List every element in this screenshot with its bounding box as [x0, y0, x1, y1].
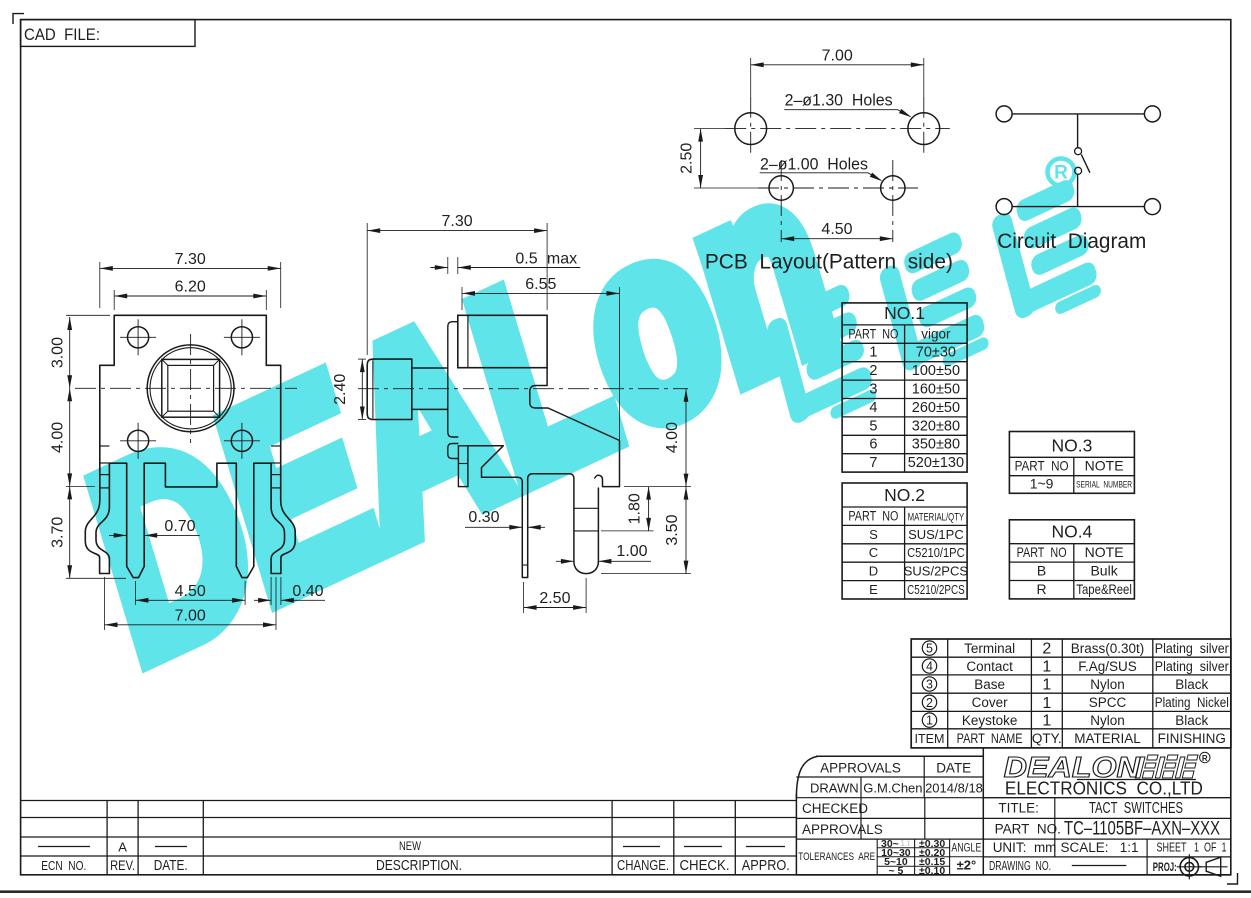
svg-text:2.40: 2.40 — [332, 374, 349, 405]
svg-text:Contact: Contact — [966, 659, 1013, 674]
svg-text:0.30: 0.30 — [468, 509, 499, 526]
svg-text:TITLE:: TITLE: — [998, 801, 1039, 816]
svg-text:ELECTRONICS CO.,LTD: ELECTRONICS CO.,LTD — [1005, 779, 1203, 799]
svg-text:R: R — [1037, 581, 1047, 597]
svg-text:SCALE: 1:1: SCALE: 1:1 — [1061, 840, 1139, 855]
svg-text:DATE.: DATE. — [154, 858, 188, 874]
svg-text:3.50: 3.50 — [664, 514, 681, 545]
svg-text:PART NO: PART NO — [848, 326, 898, 341]
svg-text:DESCRIPTION.: DESCRIPTION. — [376, 858, 462, 874]
svg-text:CHANGE.: CHANGE. — [617, 858, 669, 874]
svg-text:PART NAME: PART NAME — [957, 731, 1023, 746]
svg-text:260±50: 260±50 — [912, 400, 960, 416]
svg-text:FINISHING: FINISHING — [1158, 731, 1226, 746]
svg-text:3.00: 3.00 — [50, 337, 67, 368]
svg-text:NOTE: NOTE — [1085, 458, 1124, 474]
svg-text:2–ø1.30 Holes: 2–ø1.30 Holes — [785, 91, 893, 110]
svg-text:6.55: 6.55 — [525, 276, 556, 293]
svg-text:520±130: 520±130 — [908, 455, 964, 471]
svg-text:2.50: 2.50 — [539, 590, 570, 607]
svg-text:PROJ:: PROJ: — [1153, 862, 1177, 874]
svg-text:5: 5 — [869, 418, 877, 434]
svg-text:5: 5 — [926, 642, 933, 656]
svg-text:TC–1105BF–AXN–XXX: TC–1105BF–AXN–XXX — [1064, 819, 1220, 840]
svg-text:PART NO.: PART NO. — [995, 822, 1061, 837]
svg-text:PART NO: PART NO — [1015, 458, 1069, 474]
svg-text:Base: Base — [974, 677, 1005, 692]
svg-text:1: 1 — [869, 345, 877, 361]
svg-text:CAD FILE:: CAD FILE: — [24, 26, 100, 44]
svg-text:NO.1: NO.1 — [884, 303, 925, 323]
svg-text:1: 1 — [1042, 659, 1051, 676]
svg-text:R: R — [1202, 754, 1208, 763]
svg-text:3.70: 3.70 — [50, 517, 67, 548]
svg-text:DRAWN: DRAWN — [810, 781, 859, 796]
svg-text:C5210/2PCS: C5210/2PCS — [907, 582, 965, 597]
svg-text:1: 1 — [1042, 695, 1051, 712]
svg-text:1: 1 — [926, 714, 933, 728]
svg-text:4: 4 — [926, 660, 933, 674]
svg-text:E: E — [869, 582, 878, 597]
svg-text:4.50: 4.50 — [175, 583, 206, 600]
svg-text:D: D — [869, 564, 878, 579]
svg-text:4.50: 4.50 — [821, 221, 852, 238]
svg-text:Keystoke: Keystoke — [962, 713, 1018, 728]
svg-text:DRAWING NO.: DRAWING NO. — [989, 859, 1051, 873]
svg-text:2: 2 — [1042, 641, 1051, 658]
svg-text:Black: Black — [1175, 713, 1208, 728]
svg-text:SUS/2PCS: SUS/2PCS — [904, 564, 969, 579]
svg-text:Brass(0.30t): Brass(0.30t) — [1071, 641, 1145, 656]
svg-text:ITEM: ITEM — [915, 732, 945, 746]
svg-text:4.00: 4.00 — [50, 422, 67, 453]
svg-text:Plating Nickel: Plating Nickel — [1155, 695, 1229, 710]
svg-text:CHECK.: CHECK. — [680, 858, 730, 874]
svg-text:B: B — [1037, 563, 1046, 579]
svg-text:DATE: DATE — [936, 760, 971, 775]
svg-text:REV.: REV. — [110, 858, 135, 873]
svg-text:1~9: 1~9 — [1030, 476, 1054, 492]
svg-text:350±80: 350±80 — [912, 437, 960, 453]
svg-text:ECN NO.: ECN NO. — [41, 859, 86, 873]
svg-text:±0.10: ±0.10 — [919, 865, 945, 877]
svg-text:3: 3 — [869, 382, 877, 398]
svg-text:4.00: 4.00 — [664, 422, 681, 453]
svg-text:SERIAL NUMBER: SERIAL NUMBER — [1076, 480, 1132, 491]
svg-text:NO.2: NO.2 — [884, 485, 925, 505]
svg-text:7.30: 7.30 — [175, 251, 206, 268]
svg-text:7: 7 — [869, 455, 877, 471]
svg-text:C5210/1PC: C5210/1PC — [907, 545, 965, 560]
svg-text:0.40: 0.40 — [292, 583, 323, 600]
svg-text:2: 2 — [926, 696, 933, 710]
svg-text:2014/8/18: 2014/8/18 — [925, 781, 983, 796]
svg-text:MATERIAL: MATERIAL — [1074, 731, 1141, 746]
svg-text:Black: Black — [1175, 677, 1208, 692]
svg-text:0.70: 0.70 — [164, 518, 195, 535]
svg-text:SHEET 1 OF 1: SHEET 1 OF 1 — [1157, 841, 1227, 855]
svg-text:QTY.: QTY. — [1032, 731, 1062, 746]
svg-text:160±50: 160±50 — [912, 382, 960, 398]
svg-text:2–ø1.00 Holes: 2–ø1.00 Holes — [760, 155, 868, 174]
svg-text:TOLERANCES ARE: TOLERANCES ARE — [798, 851, 875, 863]
svg-text:6: 6 — [869, 437, 877, 453]
svg-text:2.50: 2.50 — [679, 143, 696, 174]
svg-text:2: 2 — [869, 363, 877, 379]
svg-text:vigor: vigor — [921, 326, 951, 341]
svg-text:±2°: ±2° — [957, 858, 977, 873]
svg-text:Plating silver: Plating silver — [1155, 641, 1229, 656]
svg-text:G.M.Chen: G.M.Chen — [863, 781, 922, 796]
svg-text:Cover: Cover — [972, 695, 1009, 710]
svg-text:70±30: 70±30 — [916, 345, 956, 361]
svg-text:1.00: 1.00 — [616, 543, 647, 560]
svg-text:0.5: 0.5 — [515, 251, 537, 268]
svg-text:S: S — [869, 527, 878, 542]
svg-text:A: A — [118, 840, 127, 855]
svg-text:PART NO: PART NO — [848, 508, 898, 523]
svg-text:Circuit Diagram: Circuit Diagram — [997, 229, 1146, 253]
svg-text:C: C — [869, 545, 878, 560]
svg-text:NO.3: NO.3 — [1051, 435, 1092, 455]
svg-text:6.20: 6.20 — [175, 279, 206, 296]
svg-text:APPROVALS: APPROVALS — [820, 760, 901, 775]
svg-text:1.t: 1.t — [900, 838, 910, 848]
svg-text:1: 1 — [1042, 677, 1051, 694]
svg-text:PCB Layout(Pattern side): PCB Layout(Pattern side) — [705, 250, 953, 274]
svg-text:PART NO: PART NO — [1017, 544, 1067, 560]
svg-text:~ 5: ~ 5 — [888, 865, 903, 877]
svg-text:Nylon: Nylon — [1090, 713, 1125, 728]
svg-text:NO.4: NO.4 — [1051, 522, 1092, 542]
svg-text:SUS/1PC: SUS/1PC — [908, 527, 964, 542]
svg-text:4: 4 — [869, 400, 877, 416]
svg-text:max: max — [547, 251, 577, 268]
svg-text:100±50: 100±50 — [912, 363, 960, 379]
svg-text:Terminal: Terminal — [964, 641, 1015, 656]
svg-text:7.30: 7.30 — [442, 213, 473, 230]
svg-text:NEW: NEW — [399, 841, 421, 853]
svg-text:SPCC: SPCC — [1089, 695, 1127, 710]
svg-text:Nylon: Nylon — [1090, 677, 1125, 692]
svg-text:320±80: 320±80 — [912, 418, 960, 434]
svg-text:R: R — [1054, 163, 1068, 184]
svg-text:ANGLE: ANGLE — [951, 843, 981, 855]
svg-text:Bulk: Bulk — [1090, 563, 1118, 579]
svg-text:1: 1 — [1042, 713, 1051, 730]
svg-text:APPRO.: APPRO. — [742, 858, 790, 874]
svg-text:7.00: 7.00 — [175, 607, 206, 624]
svg-text:3: 3 — [926, 678, 933, 692]
svg-text:APPROVALS: APPROVALS — [802, 822, 883, 837]
svg-text:Tape&Reel: Tape&Reel — [1076, 581, 1132, 597]
svg-text:7.00: 7.00 — [822, 47, 853, 64]
svg-text:TACT SWITCHES: TACT SWITCHES — [1089, 800, 1183, 817]
svg-text:Plating silver: Plating silver — [1155, 659, 1229, 674]
svg-text:MATERIAL/QTY: MATERIAL/QTY — [908, 511, 965, 523]
svg-text:F.Ag/SUS: F.Ag/SUS — [1078, 659, 1137, 674]
svg-text:1.80: 1.80 — [627, 493, 644, 524]
svg-text:NOTE: NOTE — [1085, 544, 1124, 560]
svg-text:UNIT: mm: UNIT: mm — [993, 840, 1057, 855]
svg-text:CHECKED: CHECKED — [802, 801, 868, 816]
